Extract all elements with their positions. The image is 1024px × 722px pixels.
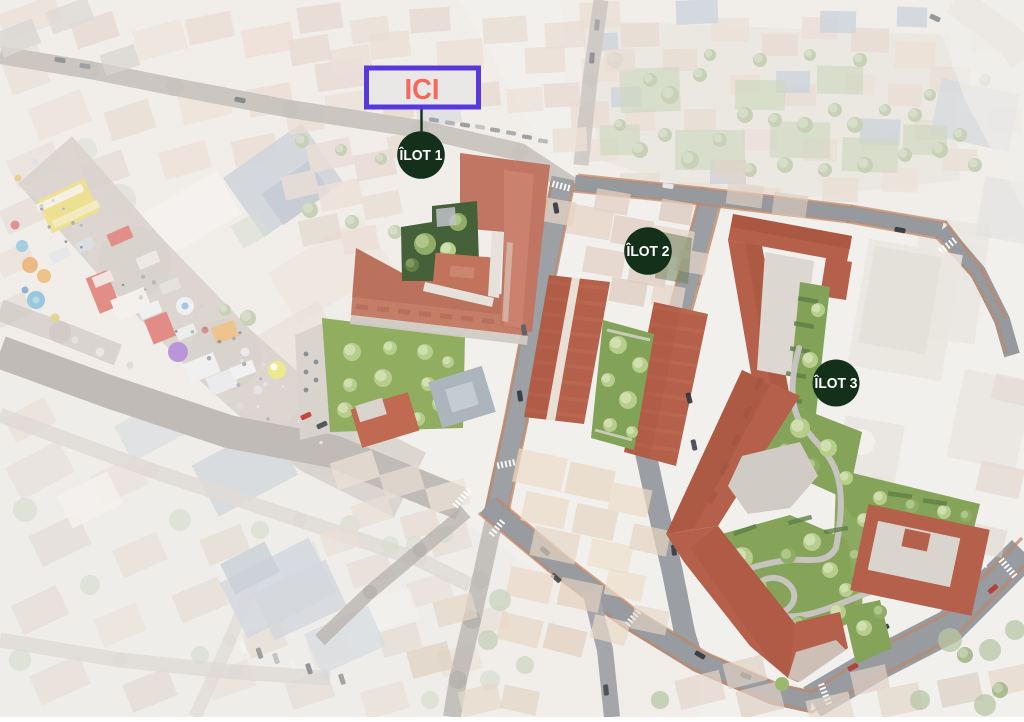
svg-text:ÎLOT 1: ÎLOT 1	[399, 146, 443, 164]
svg-text:ÎLOT 3: ÎLOT 3	[814, 374, 858, 392]
svg-text:ICI: ICI	[405, 74, 440, 106]
svg-text:ÎLOT 2: ÎLOT 2	[626, 242, 670, 260]
